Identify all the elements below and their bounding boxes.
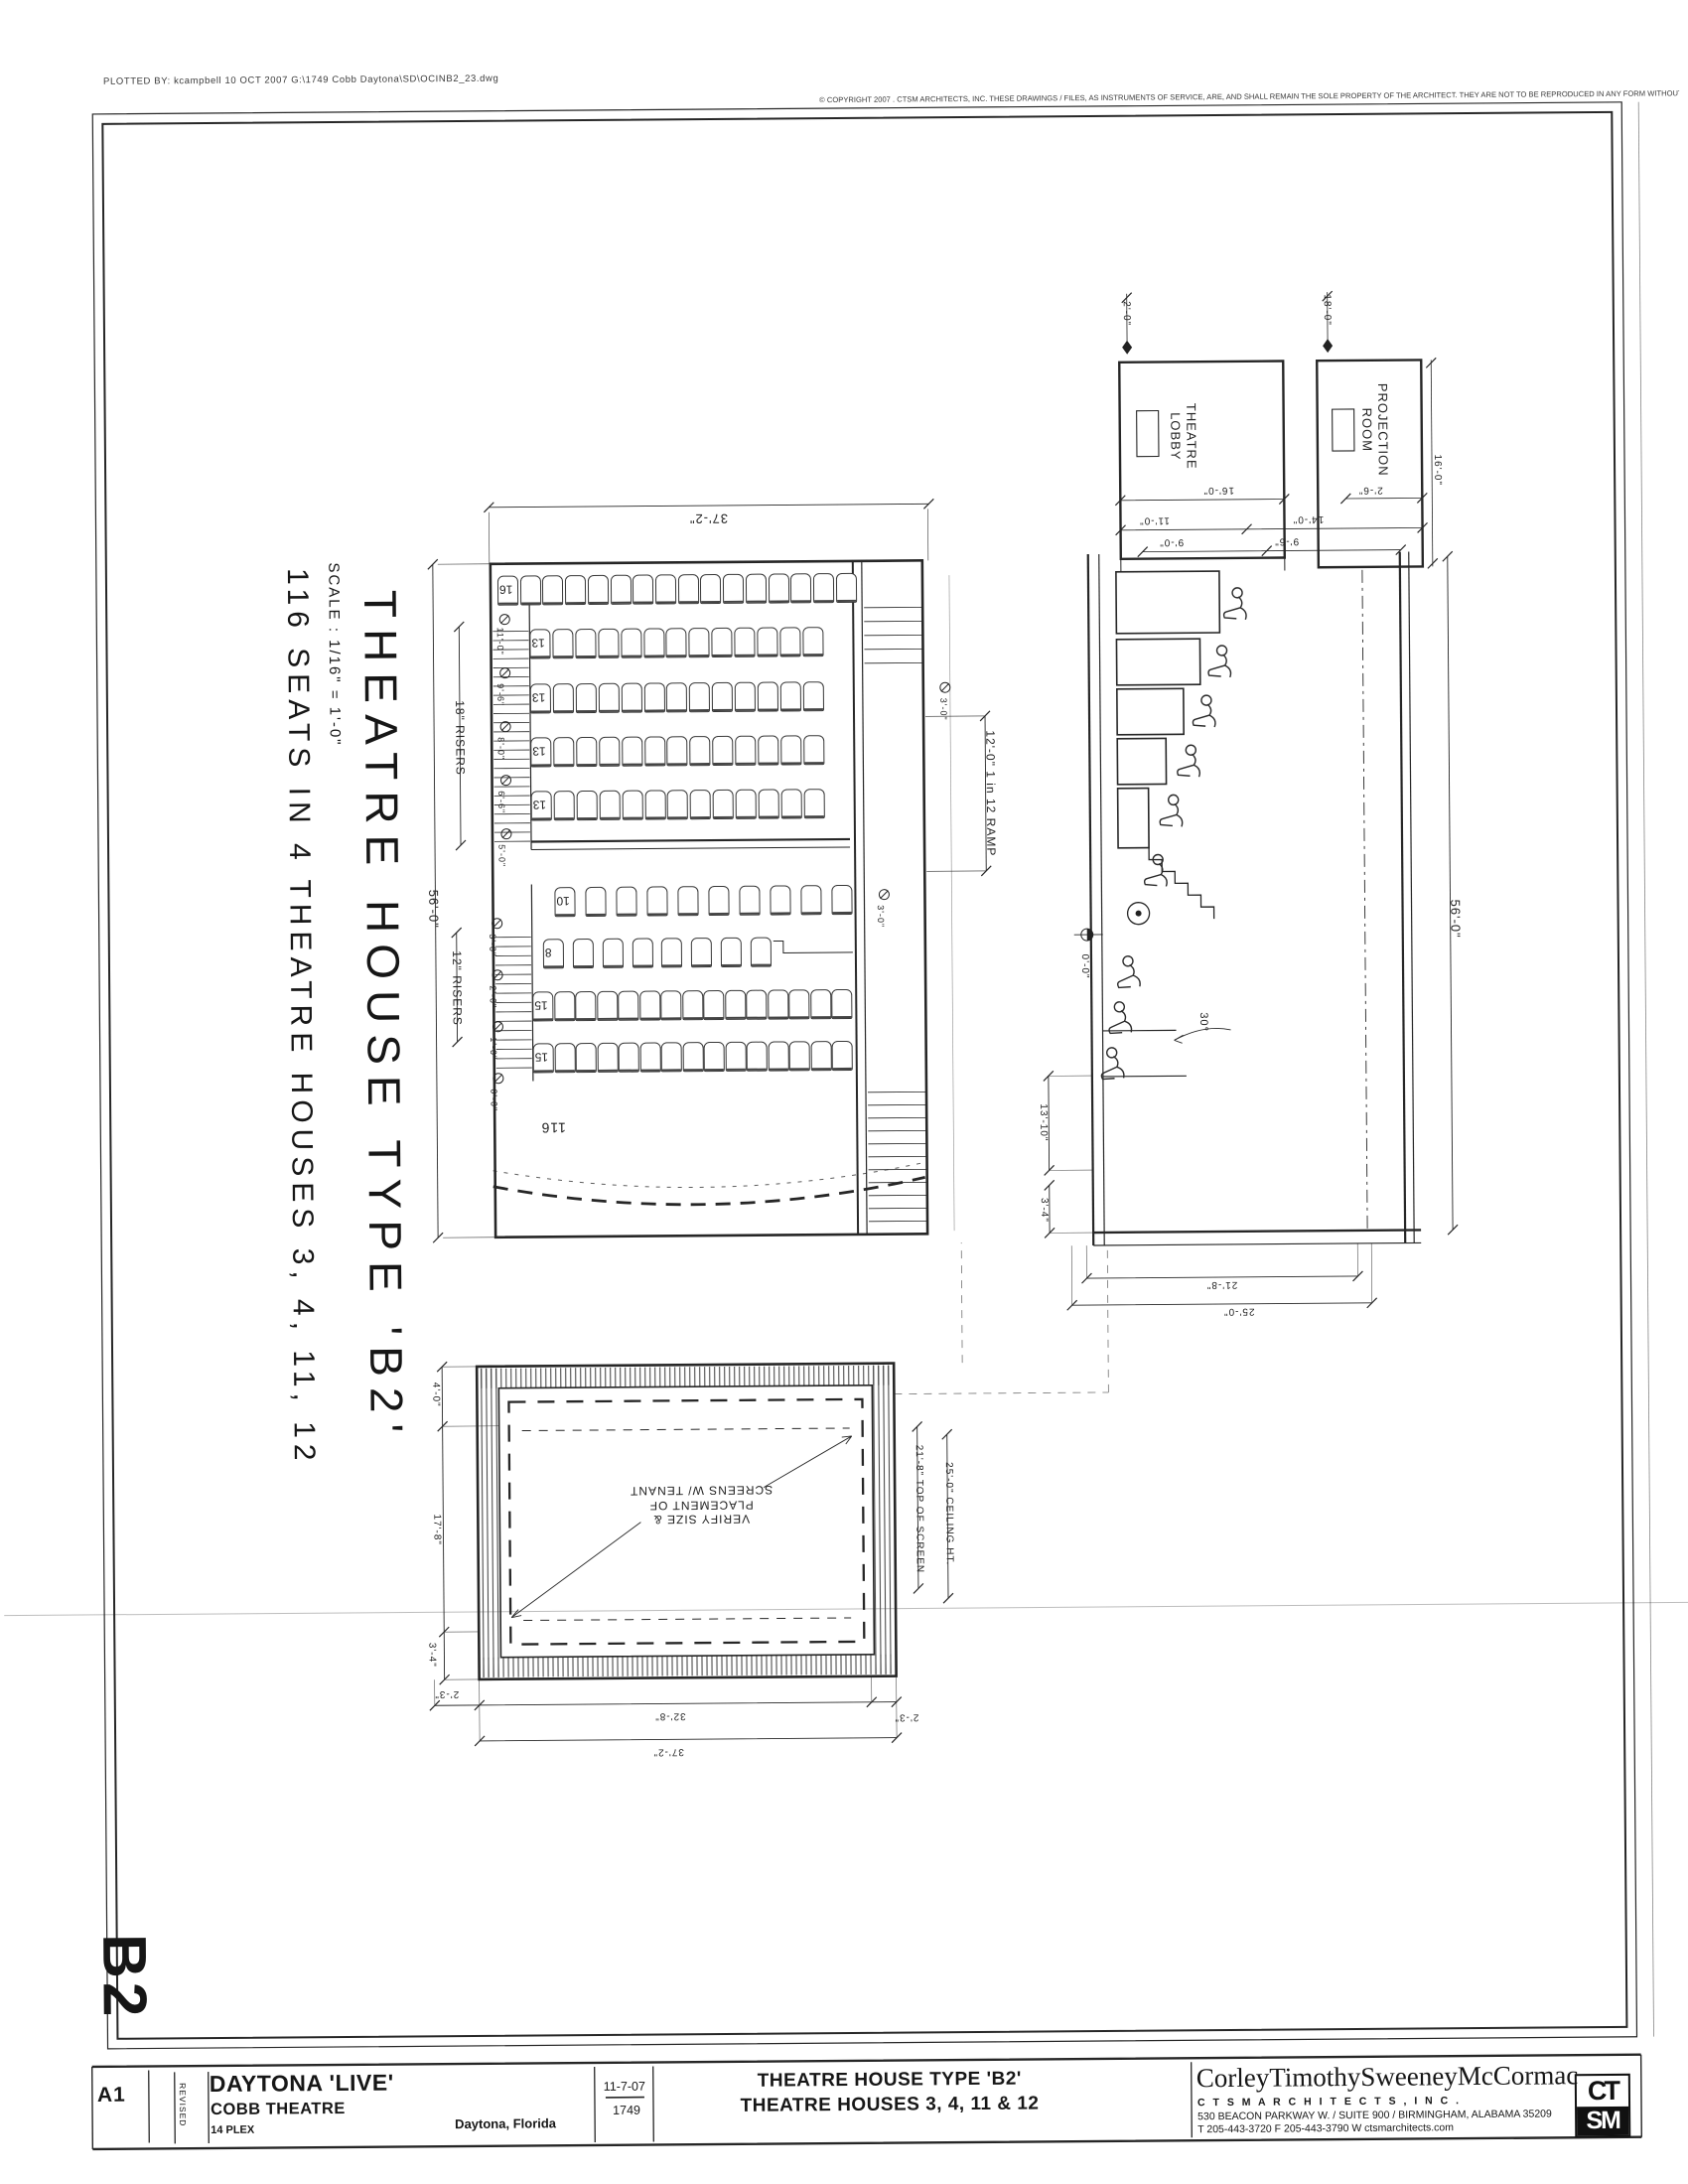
seat: [576, 1043, 597, 1073]
seat: [621, 629, 641, 658]
drawing-subtitle: 116 SEATS IN 4 THEATRE HOUSES 3, 4, 11, …: [280, 568, 321, 1467]
dim-label: 37'-2": [652, 1745, 684, 1757]
ctsm-logo: CT SM: [1575, 2074, 1631, 2137]
seat: [703, 990, 724, 1020]
seat: [757, 628, 777, 657]
sheet-reference: A1: [97, 2084, 126, 2108]
seat: [690, 736, 711, 766]
seat: [803, 789, 824, 818]
seat: [800, 885, 821, 915]
seat-row: 13: [530, 735, 824, 765]
seating-plan-linework: [432, 504, 989, 1238]
dim-label: 5'-0": [496, 844, 507, 867]
seat: [725, 1042, 746, 1072]
dim-label: 56'-0": [1448, 900, 1464, 939]
seat: [788, 989, 809, 1019]
seat-row-count: 13: [533, 798, 546, 811]
dim-label: 116: [541, 1119, 566, 1136]
seat: [831, 885, 852, 915]
dim-label: 1'-0": [488, 1037, 498, 1060]
drawing-title: THEATRE HOUSE TYPE 'B2': [353, 590, 414, 1444]
seat: [769, 573, 789, 603]
seat: [704, 1042, 725, 1072]
seat: [712, 736, 733, 766]
dim-label: 12'-0" 1 in 12 RAMP: [983, 730, 998, 856]
seat: [588, 575, 609, 605]
seat: [689, 682, 710, 712]
plex-label: 14 PLEX: [211, 2124, 254, 2136]
dim-label: PROJECTION ROOM: [1359, 383, 1391, 477]
seat-row: 10: [554, 885, 852, 915]
seat: [768, 1041, 788, 1071]
sheet-content: PLOTTED BY: kcampbell 10 OCT 2007 G:\174…: [0, 0, 1688, 2184]
seat: [639, 990, 660, 1020]
drawing-linework: [0, 0, 1688, 2184]
seat-row-count: 8: [545, 946, 552, 959]
revision-label: REVISED: [178, 2083, 188, 2126]
dim-label: 6'-6": [495, 791, 506, 813]
seat: [746, 574, 767, 604]
seat: [768, 989, 788, 1019]
dim-label: THEATRE LOBBY: [1168, 403, 1199, 470]
seat: [682, 1042, 703, 1072]
dim-label: 21'-8": [1206, 1278, 1238, 1290]
seat: [598, 629, 619, 658]
seat: [644, 790, 665, 819]
seat: [758, 736, 778, 766]
seat: [689, 628, 710, 657]
seat: [751, 938, 772, 967]
seat: [712, 682, 733, 712]
seat: [576, 737, 597, 767]
seat: [576, 791, 597, 820]
seat: [712, 628, 733, 657]
seat: [599, 737, 620, 767]
seat-row: 13: [530, 681, 824, 711]
dim-label: 14'-0": [1293, 512, 1325, 524]
seat: [618, 991, 638, 1021]
dim-label: 3'-4": [425, 1643, 437, 1668]
dim-label: VERIFY SIZE & PLACEMENT OF SCREENS W/ TE…: [630, 1483, 773, 1527]
seat-row: 13: [529, 627, 823, 656]
seat: [598, 683, 619, 713]
seat: [576, 683, 597, 713]
dim-label: 2'-3": [434, 1687, 459, 1699]
dim-label: 18'-0": [1321, 294, 1333, 326]
dim-label: 17'-8": [430, 1514, 442, 1545]
seat: [789, 1041, 810, 1071]
seat-row-count: 15: [534, 998, 547, 1012]
seat: [552, 629, 573, 658]
seat: [678, 574, 699, 604]
seat-row-count: 16: [499, 583, 512, 597]
dim-label: 3'-4": [1038, 1198, 1050, 1223]
seat: [780, 735, 801, 765]
seat-row-count: 13: [532, 690, 545, 704]
project-location: Daytona, Florida: [455, 2115, 556, 2131]
seat: [690, 790, 711, 819]
sheet-title-line1: THEATRE HOUSE TYPE 'B2': [758, 2069, 1022, 2093]
dim-label: 21'-8" TOP OF SCREEN: [913, 1445, 925, 1573]
seat: [667, 736, 688, 766]
seat: [831, 989, 852, 1019]
seat: [554, 1043, 575, 1073]
dim-label: 37'-2": [689, 510, 728, 526]
seat: [779, 627, 800, 656]
seat: [810, 1041, 831, 1071]
seat: [655, 574, 676, 604]
seat-row: 15: [532, 989, 852, 1020]
seat: [520, 575, 541, 605]
dim-label: 0'-0": [1078, 954, 1090, 979]
seat: [747, 1042, 768, 1072]
dim-label: 16'-0": [1202, 484, 1234, 496]
seat: [667, 790, 688, 819]
dim-label: 2'-3": [894, 1710, 918, 1722]
seat: [666, 682, 687, 712]
seat: [713, 790, 734, 819]
seat: [725, 990, 746, 1020]
seat: [666, 628, 687, 657]
seat: [616, 887, 636, 917]
dim-label: 2'-0": [1120, 301, 1132, 326]
seat: [553, 683, 574, 713]
dim-label: 25'-0": [1223, 1305, 1255, 1317]
seat: [691, 938, 712, 967]
dim-label: 11'-0": [1139, 513, 1170, 525]
seat: [644, 736, 665, 766]
dim-label: 3'-0": [875, 905, 886, 928]
seat: [633, 574, 653, 604]
seat: [803, 735, 824, 765]
seat: [739, 886, 760, 916]
dim-label: 56'-0": [426, 890, 442, 929]
seat: [758, 682, 778, 712]
seat: [723, 574, 744, 604]
seat: [542, 575, 563, 605]
seat: [602, 939, 623, 968]
dim-label: 18" RISERS: [453, 700, 468, 776]
seat: [708, 886, 729, 916]
dim-label: 9'-6": [494, 683, 505, 706]
seat: [599, 791, 620, 820]
seat-row-count: 13: [532, 744, 545, 758]
seat: [573, 939, 594, 968]
dim-label: 4'-0": [429, 1383, 441, 1407]
dim-label: 3'-0": [937, 698, 948, 721]
seat: [682, 990, 703, 1020]
seat-row-count: 15: [535, 1050, 548, 1064]
seat: [810, 989, 831, 1019]
ctsm-logo-top: CT: [1577, 2076, 1628, 2107]
dim-label: 8'-0": [495, 737, 506, 760]
seat: [746, 990, 767, 1020]
seat: [575, 991, 596, 1021]
seat: [554, 791, 575, 820]
dim-label: 30°: [1196, 1012, 1209, 1032]
seat: [660, 990, 681, 1020]
seat: [565, 575, 586, 605]
seat: [575, 629, 596, 658]
dim-label: 13'-10": [1037, 1103, 1049, 1141]
dim-label: 2'-6": [1358, 484, 1383, 496]
sheet-title-line2: THEATRE HOUSES 3, 4, 11 & 12: [741, 2093, 1040, 2116]
seat: [735, 736, 756, 766]
firm-contact: T 205-443-3720 F 205-443-3790 W ctsmarch…: [1197, 2121, 1454, 2135]
seat: [734, 628, 755, 657]
firm-subtitle: C T S M A R C H I T E C T S , I N C .: [1197, 2095, 1462, 2109]
client-name: COBB THEATRE: [211, 2100, 346, 2119]
drawing-sheet-page: PLOTTED BY: kcampbell 10 OCT 2007 G:\174…: [0, 0, 1688, 2184]
seat-row: 15: [533, 1041, 853, 1072]
seat: [780, 681, 801, 711]
job-number: 1749: [613, 2104, 640, 2117]
seat: [832, 1041, 853, 1071]
dim-label: 32'-8": [654, 1709, 686, 1721]
seat: [610, 575, 631, 605]
seat: [802, 627, 823, 656]
dim-label: 12" RISERS: [450, 950, 465, 1026]
seat-row-count: 13: [531, 636, 544, 650]
seat: [622, 737, 642, 767]
dim-label: 2'-0": [488, 985, 498, 1008]
sheet-letter: B2: [88, 1934, 160, 2021]
seat: [619, 1043, 639, 1073]
dim-label: 9'-0": [1159, 535, 1184, 547]
dim-label: 11'-0": [494, 628, 505, 655]
drawing-scale: SCALE : 1/16" = 1'-0": [325, 562, 343, 746]
seat: [803, 681, 824, 711]
seat: [790, 573, 811, 603]
seat: [661, 938, 682, 967]
project-name: DAYTONA 'LIVE': [210, 2070, 394, 2098]
seat-row: 8: [543, 938, 772, 967]
seat: [759, 790, 779, 819]
seat: [621, 683, 641, 713]
dim-label: 9'-6": [1274, 534, 1299, 546]
seat: [632, 939, 652, 968]
seat: [661, 1042, 682, 1072]
seat: [553, 737, 574, 767]
seat: [700, 574, 721, 604]
seat: [677, 886, 698, 916]
seat: [643, 628, 664, 657]
seat: [554, 991, 575, 1021]
seat: [585, 887, 606, 917]
seat: [597, 1043, 618, 1073]
dim-label: 0'-0": [489, 1089, 499, 1111]
seat-row: 16: [497, 573, 857, 604]
seat: [836, 573, 857, 603]
border-frame: [0, 101, 1688, 2149]
seat: [597, 991, 618, 1021]
seat: [736, 790, 757, 819]
dim-label: 3'-0": [487, 934, 497, 956]
dim-label: 16'-0": [1431, 455, 1443, 487]
seat-row-count: 10: [556, 894, 569, 908]
seat: [622, 791, 642, 820]
seat: [813, 573, 834, 603]
dim-label: 25'-0" CEILING HT.: [942, 1462, 955, 1565]
seat: [646, 886, 667, 916]
ctsm-logo-bottom: SM: [1577, 2107, 1628, 2135]
seat: [721, 938, 742, 967]
issue-date: 11-7-07: [604, 2080, 645, 2094]
firm-name: CorleyTimothySweeneyMcCormac: [1196, 2060, 1579, 2094]
seat: [781, 789, 802, 818]
seat: [639, 1042, 660, 1072]
seat: [770, 885, 790, 915]
section-view-linework: [1045, 551, 1454, 1305]
seat: [643, 682, 664, 712]
seat: [735, 682, 756, 712]
seat-row: 13: [531, 789, 825, 818]
